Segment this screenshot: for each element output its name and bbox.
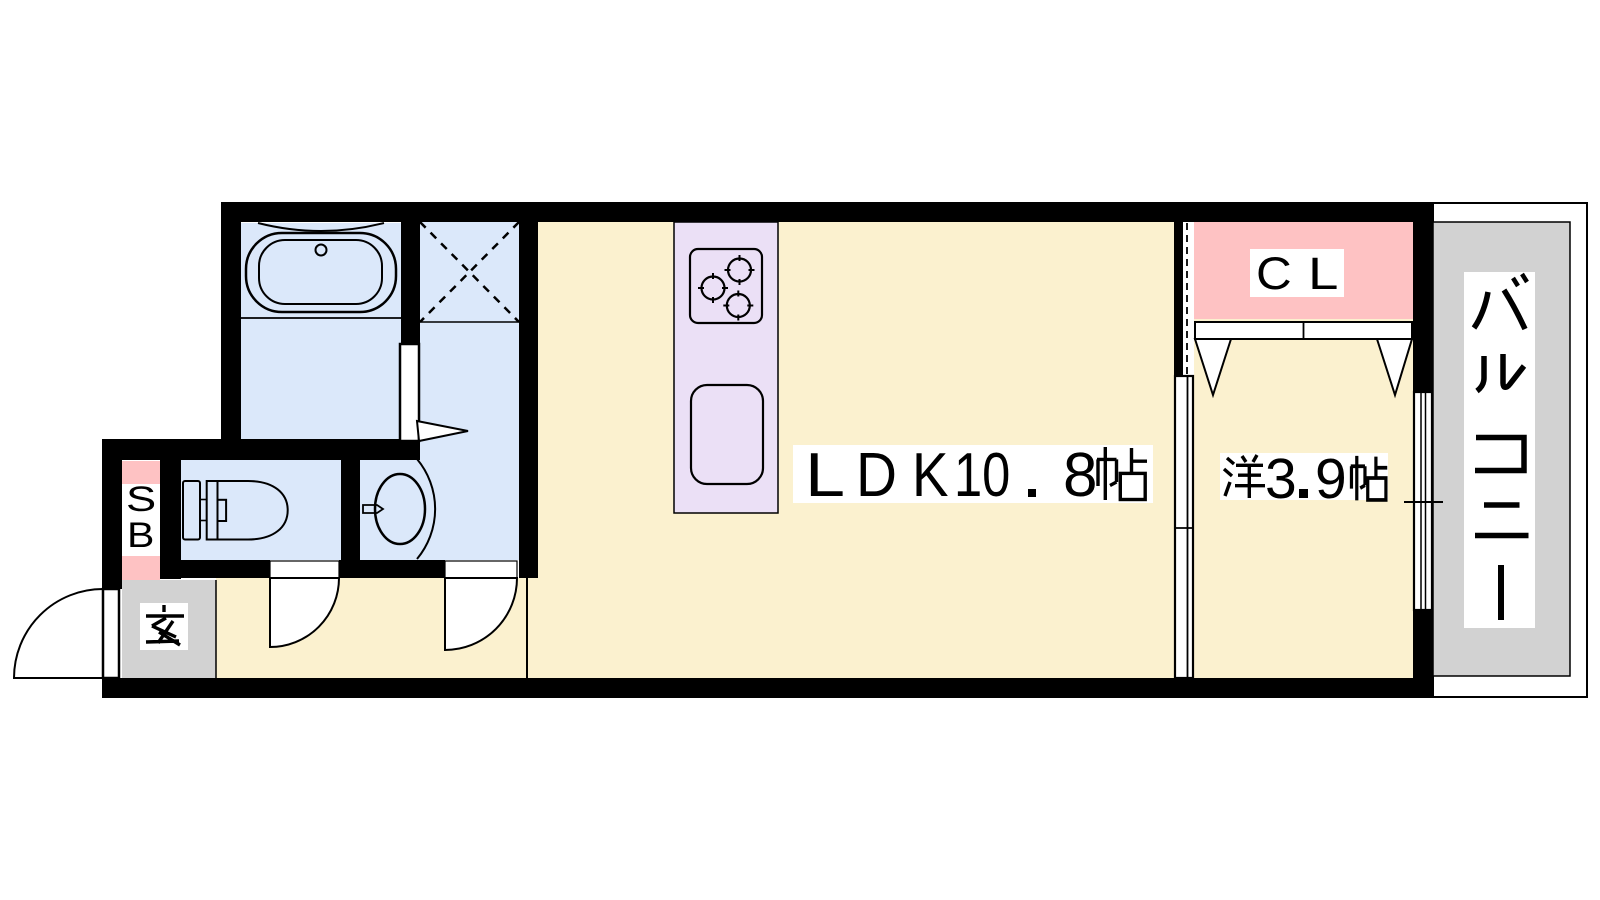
svg-text:S: S (126, 479, 156, 519)
svg-text:8: 8 (1063, 441, 1097, 510)
svg-text:C: C (1256, 248, 1292, 299)
svg-text:B: B (127, 515, 154, 555)
svg-text:L: L (1308, 248, 1338, 299)
svg-text:K: K (912, 441, 949, 510)
svg-text:L: L (805, 441, 845, 510)
svg-text:9: 9 (1315, 447, 1347, 511)
svg-text:D: D (856, 441, 897, 510)
svg-text:3: 3 (1265, 447, 1297, 511)
svg-text:10: 10 (954, 441, 1010, 510)
